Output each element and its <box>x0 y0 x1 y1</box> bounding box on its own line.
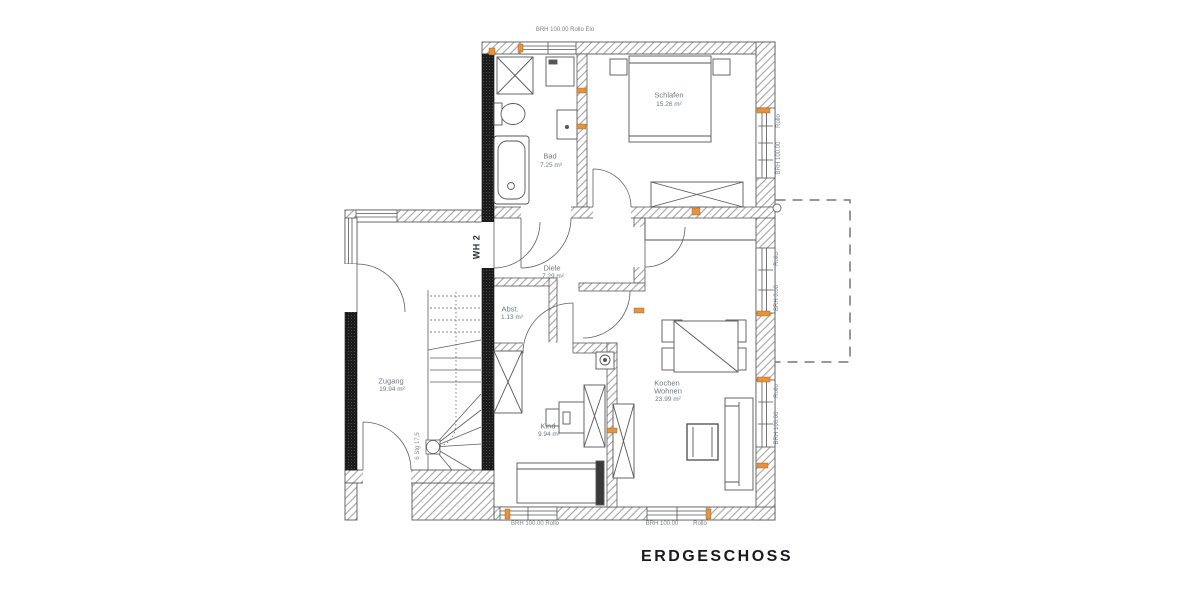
wardrobe-schlafen <box>651 182 743 207</box>
sink <box>557 110 577 139</box>
room-area-kind: 9.94 m² <box>538 432 560 439</box>
shower <box>497 57 533 94</box>
room-area-diele: 7.29 m² <box>542 274 564 281</box>
wardrobe-wohnen <box>613 404 634 478</box>
window-label-wohnen-rollo: Rollo <box>774 384 780 398</box>
tv-board <box>687 424 718 460</box>
wardrobe-kind-left <box>494 351 522 413</box>
dining-set <box>662 320 746 372</box>
room-label-bad: Bad <box>543 152 556 160</box>
datum-circle <box>773 204 781 212</box>
unit-label-wh2: WH 2 <box>473 235 482 260</box>
floorplan-canvas: BRH 100.00 Rollo Elo Schlafen 15.26 m² B… <box>0 0 1200 600</box>
bathtub <box>494 136 529 204</box>
window-label-schlafen-brh: BRH 100.00 <box>776 142 782 175</box>
stairs-label: 6 Stg 17,5 <box>415 432 421 459</box>
kitchen-counter <box>645 218 756 240</box>
walls-dark <box>345 54 494 470</box>
sofa <box>725 398 753 490</box>
floorplan-drawing <box>0 0 1200 600</box>
window-label-bottom-wohnen-rollo: Rollo <box>693 521 707 527</box>
washing-machine <box>546 57 574 86</box>
window-label-terrasse-rollo: Rollo <box>774 252 780 266</box>
page-title: ERDGESCHOSS <box>641 549 793 565</box>
window-label-schlafen-rollo: Rollo <box>776 114 782 128</box>
room-area-bad: 7.25 m² <box>540 163 562 170</box>
window-label-terrasse-brh: BRH 0.00 <box>774 285 780 311</box>
room-label-abst: Abst. <box>501 305 518 313</box>
room-area-abst: 1.13 m² <box>501 315 523 322</box>
room-area-kochen-wohnen: 23.99 m² <box>655 397 681 404</box>
wardrobe-kind-right <box>584 385 605 447</box>
kind-bed <box>517 461 604 505</box>
column-detail <box>596 352 614 369</box>
window-label-top: BRH 100.00 Rollo Elo <box>536 27 594 33</box>
room-area-schlafen: 15.26 m² <box>656 102 682 109</box>
room-area-zugang: 19.94 m² <box>379 387 405 394</box>
window-label-bottom-wohnen-brh: BRH 100.00 <box>646 521 679 527</box>
staircase <box>426 290 481 470</box>
room-label-diele: Diele <box>543 264 560 272</box>
window-label-wohnen-brh: BRH 100.00 <box>774 412 780 445</box>
room-label-schlafen: Schlafen <box>654 91 683 99</box>
window-label-bottom-kind: BRH 100.00 Rollo <box>511 521 559 527</box>
room-label-zugang: Zugang <box>378 377 403 385</box>
toilet <box>494 103 525 125</box>
terrace-outline <box>776 200 851 362</box>
room-label-kind: Kind <box>540 422 555 430</box>
room-label-wohnen: Wohnen <box>654 387 682 395</box>
